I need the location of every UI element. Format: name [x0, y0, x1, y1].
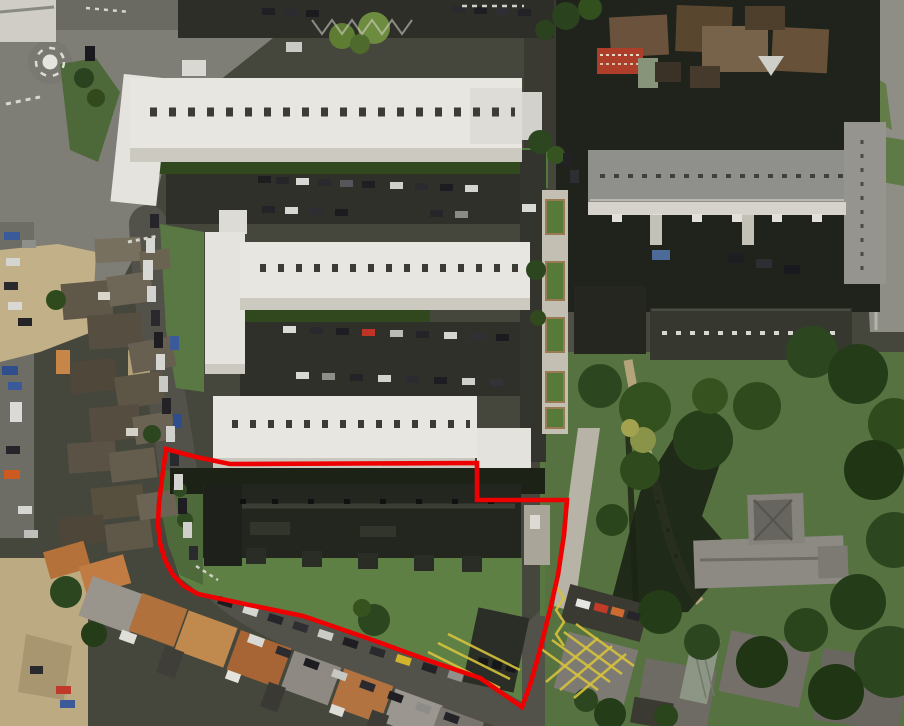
vehicles-shape-22	[154, 332, 163, 348]
churchyard-shape-26	[673, 410, 733, 470]
vehicles-shape-72	[496, 8, 509, 15]
vehicles-shape-47	[335, 209, 348, 216]
old-town-west-shape-18	[56, 350, 70, 374]
parking-lots-shape-7	[286, 42, 302, 52]
apartment-blocks-shape-11	[240, 298, 530, 310]
east-complex-shape-29	[742, 215, 754, 245]
east-complex-shape-27	[812, 214, 822, 222]
vehicles-shape-2	[6, 258, 20, 266]
vehicles-shape-7	[8, 382, 22, 390]
vehicles-shape-73	[518, 9, 531, 16]
east-complex-shape-3	[535, 20, 555, 40]
vehicles-shape-14	[56, 686, 71, 694]
old-town-west-shape-23	[46, 290, 66, 310]
vehicles-shape-44	[262, 206, 275, 213]
vehicles-shape-63	[406, 376, 419, 383]
vehicles-shape-51	[310, 327, 323, 334]
churchyard-shape-36	[808, 664, 864, 720]
east-complex-shape-1	[552, 2, 580, 30]
old-town-west-shape-27	[87, 89, 105, 107]
vehicles-shape-61	[350, 374, 363, 381]
parking-lots-shape-6	[350, 34, 370, 54]
old-town-west-shape-5	[114, 371, 166, 409]
vehicles-shape-31	[178, 498, 187, 514]
vehicles-shape-50	[283, 326, 296, 333]
east-complex-shape-21	[588, 202, 846, 215]
east-complex-shape-38	[546, 372, 564, 402]
vehicles-shape-58	[496, 334, 509, 341]
vehicles-shape-71	[474, 7, 487, 14]
east-complex-shape-22	[612, 214, 622, 222]
east-complex-shape-41	[547, 146, 565, 164]
apartment-blocks-shape-8	[205, 232, 245, 364]
vehicles-shape-48	[430, 210, 443, 217]
vehicles-shape-26	[162, 398, 171, 414]
site-terrace-shape-18	[462, 556, 482, 572]
east-complex-shape-43	[530, 310, 546, 326]
vehicles-shape-36	[296, 178, 309, 185]
site-terrace-shape-26	[353, 599, 371, 617]
vehicles-shape-39	[362, 181, 375, 188]
site-terrace-shape-10	[452, 499, 458, 504]
hedgerows-shape-0	[130, 162, 525, 174]
vehicles-shape-54	[390, 330, 403, 337]
site-terrace-shape-19	[524, 505, 550, 565]
site-terrace-shape-15	[302, 551, 322, 567]
vehicles-shape-68	[284, 9, 297, 16]
vehicles-shape-35	[276, 177, 289, 184]
vehicles-shape-79	[756, 259, 772, 268]
site-terrace-shape-3	[204, 484, 242, 566]
site-terrace-shape-13	[360, 526, 396, 537]
site-terrace-shape-16	[358, 553, 378, 569]
old-town-west-shape-13	[104, 519, 153, 552]
vehicles-shape-38	[340, 180, 353, 187]
old-town-west-shape-24	[143, 425, 161, 443]
vehicles-shape-12	[24, 530, 38, 538]
old-town-west-shape-19	[98, 292, 110, 300]
site-terrace-shape-8	[380, 499, 386, 504]
churchyard-shape-37	[620, 450, 660, 490]
churchyard-shape-30	[828, 344, 888, 404]
churchyard-shape-27	[733, 382, 781, 430]
vehicles-shape-66	[490, 379, 503, 386]
vehicles-shape-78	[728, 254, 744, 263]
east-complex-shape-7	[771, 27, 829, 74]
churchyard-shape-40	[684, 624, 720, 660]
vehicles-shape-11	[18, 506, 32, 514]
churchyard-shape-28	[692, 378, 728, 414]
vehicles-shape-53	[362, 329, 375, 336]
vehicles-shape-8	[10, 402, 22, 422]
vehicles-shape-41	[415, 183, 428, 190]
site-terrace-shape-14	[246, 548, 266, 564]
vehicles-shape-19	[143, 260, 153, 280]
old-town-west-shape-9	[108, 447, 157, 482]
site-terrace-shape-9	[416, 499, 422, 504]
vehicles-shape-20	[147, 286, 156, 302]
east-complex-shape-36	[546, 262, 564, 300]
vehicles-shape-56	[444, 332, 457, 339]
site-terrace-shape-1	[203, 484, 521, 558]
east-complex-shape-25	[732, 214, 742, 222]
old-town-west-shape-14	[94, 237, 141, 263]
vehicles-shape-24	[156, 354, 165, 370]
vehicles-shape-75	[563, 153, 572, 167]
vehicles-shape-65	[462, 378, 475, 385]
churchyard-shape-34	[830, 574, 886, 630]
vehicles-shape-60	[322, 373, 335, 380]
site-terrace-shape-12	[250, 522, 290, 535]
vehicles-shape-59	[296, 372, 309, 379]
east-complex-shape-9	[597, 48, 643, 74]
vehicles-shape-46	[310, 208, 323, 215]
vehicles-shape-1	[22, 240, 36, 248]
vehicles-shape-21	[151, 310, 160, 326]
vehicles-shape-64	[434, 377, 447, 384]
vehicles-shape-10	[4, 470, 20, 479]
aerial-canvas	[0, 0, 904, 726]
vehicles-shape-49	[455, 211, 468, 218]
vehicles-shape-57	[470, 333, 483, 340]
vehicles-shape-4	[8, 302, 22, 310]
vehicles-shape-33	[189, 546, 198, 560]
vehicles-shape-27	[173, 414, 182, 428]
vehicles-shape-45	[285, 207, 298, 214]
vehicles-shape-34	[258, 176, 271, 183]
old-town-west-shape-20	[126, 428, 138, 436]
vehicles-shape-16	[85, 46, 95, 61]
road-markings-shape-0	[43, 55, 58, 70]
vehicles-shape-40	[390, 182, 403, 189]
east-complex-shape-6	[702, 26, 768, 72]
vehicles-shape-74	[522, 204, 536, 212]
east-complex-shape-35	[546, 200, 564, 234]
old-town-west-shape-21	[50, 576, 82, 608]
site-terrace-shape-6	[308, 499, 314, 504]
churchyard-shape-42	[784, 608, 828, 652]
vehicles-shape-18	[146, 238, 155, 253]
vehicles-shape-69	[306, 10, 319, 17]
vehicles-shape-76	[570, 170, 579, 183]
vehicles-shape-15	[60, 700, 75, 708]
churchyard-shape-14	[817, 545, 848, 578]
east-complex-shape-28	[650, 215, 662, 245]
churchyard-shape-41	[736, 636, 788, 688]
east-complex-shape-26	[772, 214, 782, 222]
site-terrace-shape-7	[344, 499, 350, 504]
churchyard-shape-39	[638, 590, 682, 634]
vehicles-shape-80	[784, 265, 800, 274]
site-terrace-shape-17	[414, 555, 434, 571]
site-terrace-shape-5	[272, 499, 278, 504]
vehicles-shape-13	[30, 666, 43, 674]
vehicles-shape-67	[262, 8, 275, 15]
churchyard-shape-38	[596, 504, 628, 536]
vehicles-shape-52	[336, 328, 349, 335]
east-complex-shape-37	[546, 318, 564, 352]
vehicles-shape-0	[4, 232, 20, 240]
east-complex-shape-15	[690, 66, 720, 88]
east-complex-shape-24	[692, 214, 702, 222]
old-town-west-shape-12	[59, 514, 105, 545]
old-town-west-shape-22	[81, 621, 107, 647]
vehicles-shape-43	[465, 185, 478, 192]
east-complex-shape-42	[526, 260, 546, 280]
churchyard-shape-24	[578, 364, 622, 408]
site-terrace-shape-20	[530, 515, 540, 529]
vehicles-shape-6	[2, 366, 18, 375]
vehicles-shape-3	[4, 282, 18, 290]
vehicles-shape-37	[318, 179, 331, 186]
apartment-blocks-shape-4	[182, 60, 206, 76]
churchyard-shape-32	[844, 440, 904, 500]
vehicles-shape-28	[166, 426, 175, 442]
apartment-blocks-shape-12	[205, 364, 245, 374]
churchyard-shape-44	[621, 419, 639, 437]
east-complex-shape-39	[546, 408, 564, 428]
vehicles-shape-77	[652, 250, 670, 260]
churchyard-shape-46	[574, 688, 598, 712]
vehicles-shape-62	[378, 375, 391, 382]
vehicles-shape-5	[18, 318, 32, 326]
vehicles-shape-32	[183, 522, 192, 538]
vehicles-shape-55	[416, 331, 429, 338]
hedgerows-shape-1	[244, 310, 430, 322]
vehicles-shape-17	[150, 214, 159, 228]
east-complex-shape-19	[844, 122, 886, 284]
apartment-blocks-shape-7	[219, 210, 247, 234]
vehicles-shape-30	[174, 474, 183, 490]
old-town-west-shape-4	[68, 358, 117, 395]
site-terrace-shape-4	[240, 499, 246, 504]
vehicles-shape-42	[440, 184, 453, 191]
apartment-blocks-shape-6	[130, 148, 522, 162]
east-complex-shape-33	[574, 286, 646, 354]
old-town-west-shape-26	[74, 68, 94, 88]
vehicles-shape-23	[170, 336, 179, 350]
vehicles-shape-25	[159, 376, 168, 392]
vehicles-shape-9	[6, 446, 20, 454]
east-complex-shape-14	[655, 62, 681, 82]
east-complex-shape-8	[745, 6, 785, 30]
aerial-photo	[0, 0, 904, 726]
